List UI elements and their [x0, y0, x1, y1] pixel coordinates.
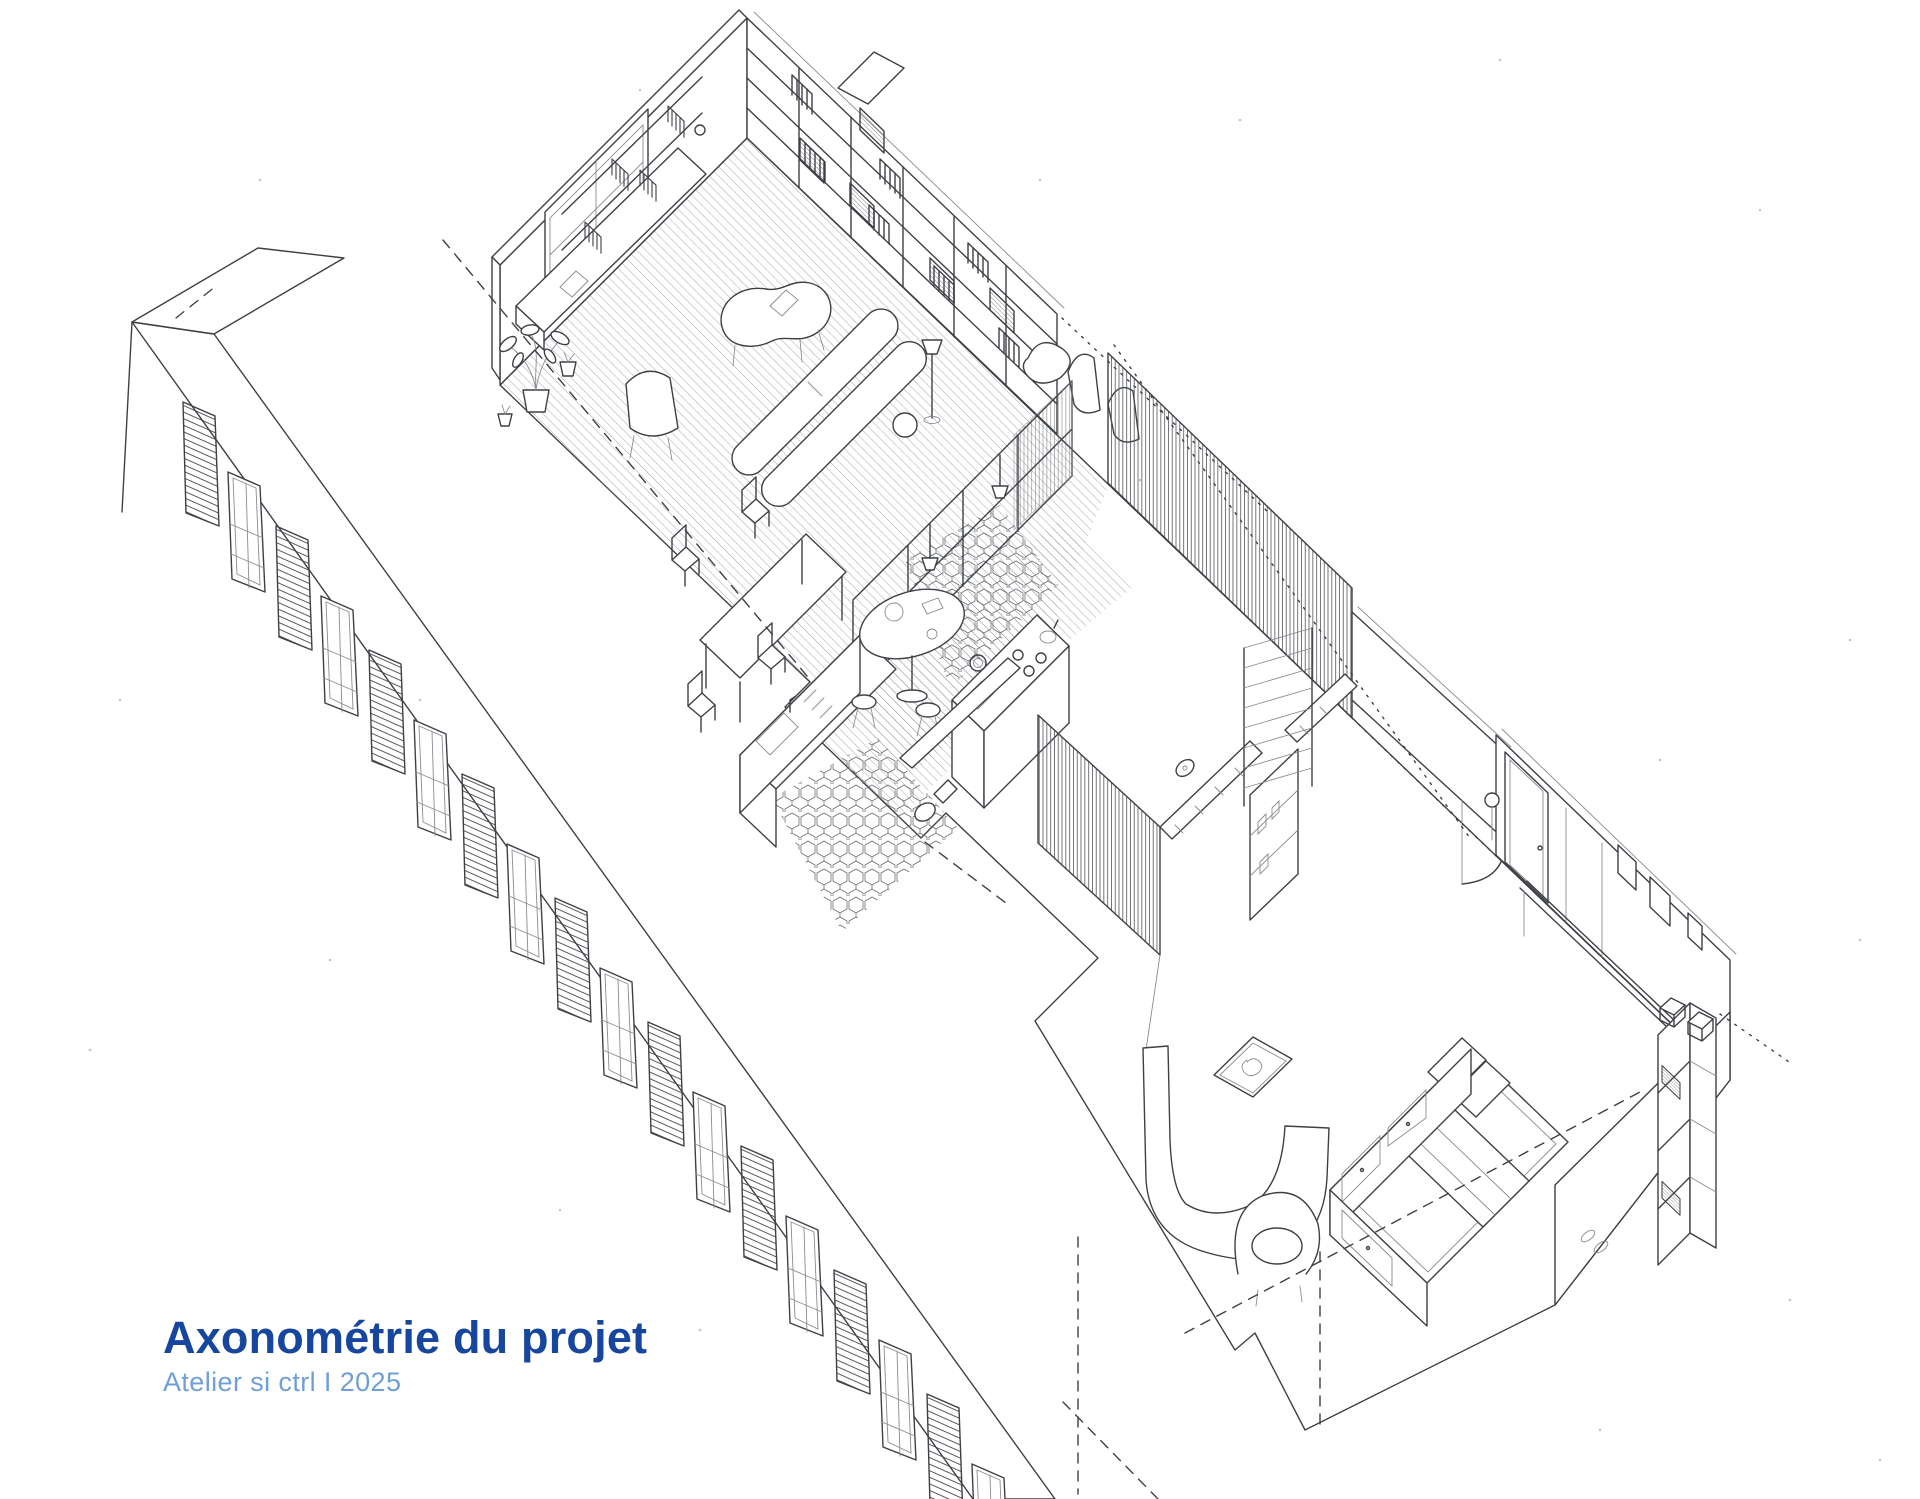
axonometric-drawing — [0, 0, 1920, 1499]
plant-pot — [498, 414, 512, 426]
side-table — [893, 413, 917, 437]
armchair — [626, 371, 678, 436]
facade-return — [132, 248, 344, 334]
page-title: Axonométrie du projet — [163, 1312, 647, 1364]
vase — [695, 125, 705, 135]
title-block: Axonométrie du projet Atelier si ctrl I … — [163, 1312, 647, 1398]
wall-box — [838, 52, 904, 104]
apartment — [89, 10, 1882, 1499]
plant-pot — [523, 390, 549, 412]
stool — [852, 695, 876, 709]
page: Axonométrie du projet Atelier si ctrl I … — [0, 0, 1920, 1499]
wall-lamp — [1485, 793, 1499, 807]
facade-corner-edge — [122, 322, 132, 512]
plant-pot — [560, 362, 576, 376]
project-credit: Atelier si ctrl I 2025 — [163, 1367, 647, 1398]
leaning-panel — [1068, 354, 1100, 413]
shelf-tower — [1658, 998, 1716, 1265]
stool — [916, 703, 940, 717]
